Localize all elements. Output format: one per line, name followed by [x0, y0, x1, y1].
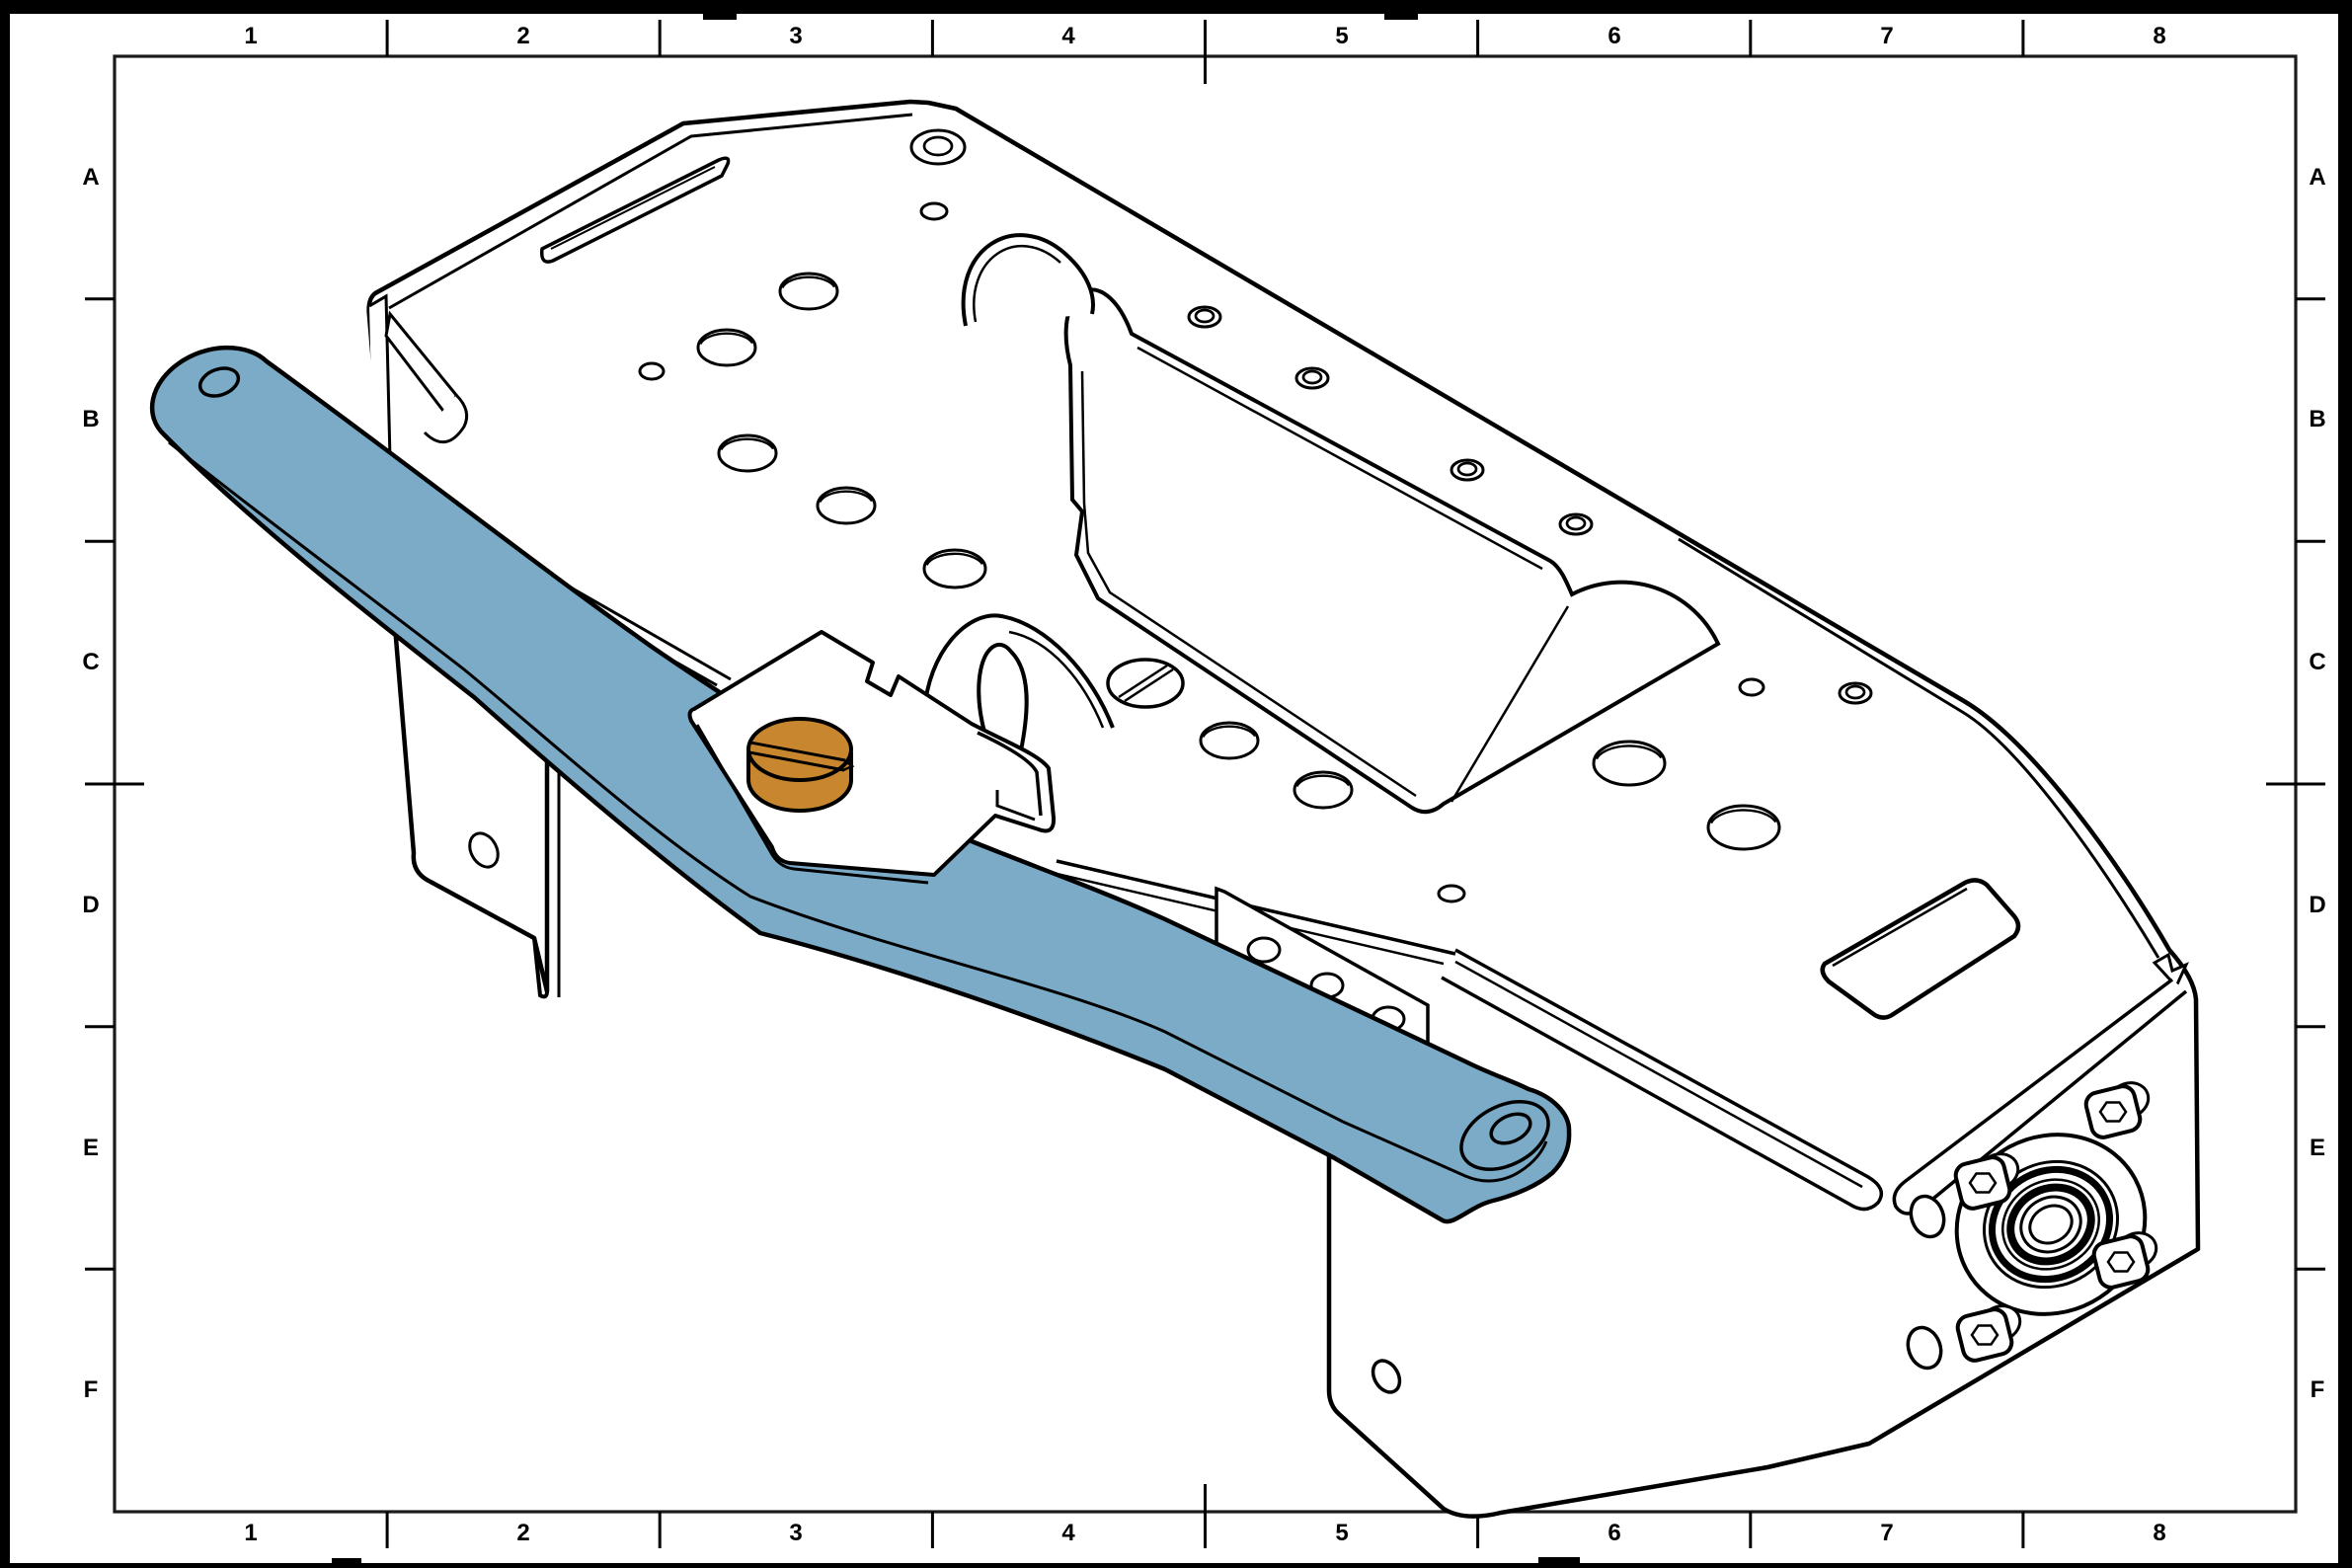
svg-text:F: F [84, 1376, 99, 1403]
svg-text:D: D [82, 892, 99, 918]
svg-text:8: 8 [2153, 1520, 2165, 1546]
svg-text:A: A [2309, 164, 2325, 191]
svg-text:4: 4 [1061, 23, 1075, 49]
svg-text:2: 2 [516, 23, 529, 49]
svg-text:A: A [82, 164, 99, 191]
svg-text:2: 2 [516, 1520, 529, 1546]
svg-text:D: D [2309, 892, 2325, 918]
svg-text:7: 7 [1880, 1520, 1893, 1546]
svg-text:3: 3 [789, 23, 802, 49]
svg-text:5: 5 [1335, 1520, 1348, 1546]
svg-text:8: 8 [2153, 23, 2165, 49]
svg-text:E: E [83, 1135, 99, 1161]
svg-text:B: B [82, 406, 99, 432]
svg-text:C: C [82, 649, 99, 675]
svg-text:4: 4 [1061, 1520, 1075, 1546]
svg-text:6: 6 [1607, 1520, 1620, 1546]
svg-text:E: E [2310, 1135, 2325, 1161]
svg-text:1: 1 [244, 1520, 257, 1546]
svg-text:7: 7 [1880, 23, 1893, 49]
svg-text:5: 5 [1335, 23, 1348, 49]
svg-text:1: 1 [244, 23, 257, 49]
svg-text:B: B [2309, 406, 2325, 432]
svg-text:F: F [2311, 1376, 2325, 1403]
svg-text:C: C [2309, 649, 2325, 675]
svg-text:3: 3 [789, 1520, 802, 1546]
svg-text:6: 6 [1607, 23, 1620, 49]
